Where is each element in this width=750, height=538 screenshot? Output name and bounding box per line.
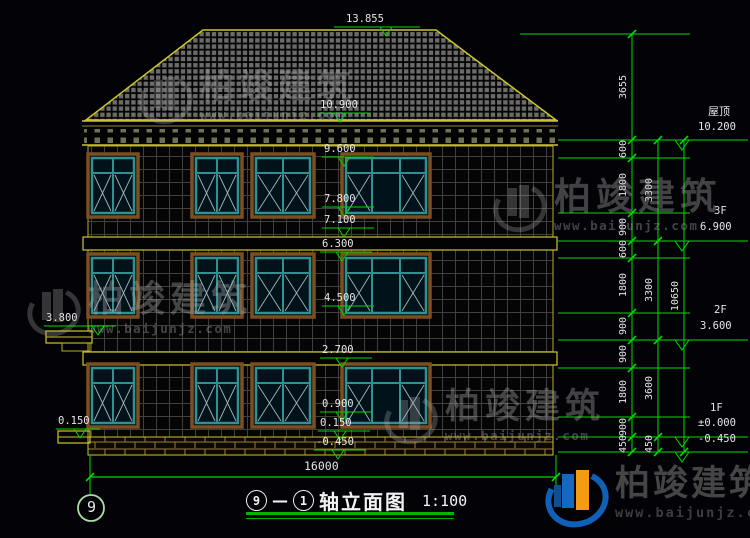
title-underline-thin bbox=[246, 518, 454, 519]
dim-label: 3655 bbox=[619, 59, 629, 115]
elevation-label: 0.150 bbox=[320, 418, 352, 429]
title-axis-end: 1 bbox=[293, 490, 314, 511]
floor-elevation-2f: 3.600 bbox=[700, 321, 732, 332]
windows-3f bbox=[88, 154, 430, 217]
elevation-label: 2.700 bbox=[322, 345, 354, 356]
floor-elevation-1f: ±0.000 bbox=[698, 418, 736, 429]
watermark: 柏竣建筑 www.baijunjz.com bbox=[383, 390, 605, 444]
floor-elevation-roof: 10.200 bbox=[698, 122, 736, 133]
brand-logo-icon bbox=[543, 462, 607, 526]
floor-label-roof: 屋顶 bbox=[708, 106, 730, 117]
title-axis-start: 9 bbox=[246, 490, 267, 511]
brand-logo: 柏竣建筑 www.baijunjz.com bbox=[543, 462, 750, 526]
elevation-linework bbox=[0, 0, 750, 538]
watermark-brand: 柏竣建筑 bbox=[445, 390, 605, 425]
elevation-label: 13.855 bbox=[346, 14, 384, 25]
watermark-site: www.baijunjz.com bbox=[445, 428, 605, 443]
elevation-label: 7.800 bbox=[324, 194, 356, 205]
brand-logo-icon bbox=[26, 282, 80, 336]
title-underline-thick bbox=[246, 512, 454, 515]
watermark-site: www.baijunjz.com bbox=[554, 218, 722, 233]
elevation-label: 0.900 bbox=[322, 399, 354, 410]
title-scale: 1:100 bbox=[422, 492, 467, 510]
watermark-site: www.baijunjz.com bbox=[200, 107, 356, 122]
brand-logo-icon bbox=[492, 178, 546, 232]
elevation-label: 6.300 bbox=[322, 239, 354, 250]
dim-label: 3300 bbox=[645, 262, 655, 318]
elevation-label: 9.600 bbox=[324, 144, 356, 155]
watermark-site: www.baijunjz.com bbox=[88, 321, 252, 336]
floor-elevation-ground: -0.450 bbox=[698, 434, 736, 445]
floor-band-3f bbox=[83, 237, 557, 250]
cad-elevation-drawing: 13.855 10.900 9.600 7.800 7.100 6.300 4.… bbox=[0, 0, 750, 538]
watermark-brand: 柏竣建筑 bbox=[554, 178, 722, 215]
title-text: 轴立面图 bbox=[319, 486, 407, 515]
brand-logo-icon bbox=[383, 390, 437, 444]
windows-1f bbox=[88, 364, 430, 427]
watermark: 柏竣建筑 www.baijunjz.com bbox=[26, 282, 252, 336]
dim-label: 3600 bbox=[645, 360, 655, 416]
eave-band bbox=[82, 121, 558, 145]
watermark-brand: 柏竣建筑 bbox=[200, 70, 356, 104]
brand-logo-icon bbox=[138, 70, 192, 124]
brand-name: 柏竣建筑 bbox=[615, 467, 750, 502]
side-step bbox=[58, 431, 90, 443]
watermark-brand: 柏竣建筑 bbox=[88, 282, 252, 318]
total-width-dim: 16000 bbox=[304, 461, 339, 473]
floor-label-2f: 2F bbox=[714, 305, 727, 316]
elevation-label: 4.500 bbox=[324, 293, 356, 304]
title-dash: — bbox=[272, 491, 288, 510]
watermark: 柏竣建筑 www.baijunjz.com bbox=[492, 178, 722, 233]
brand-website: www.baijunjz.com bbox=[615, 505, 750, 521]
elevation-label: -0.450 bbox=[316, 437, 354, 448]
dim-label: 10650 bbox=[671, 268, 681, 324]
floor-label-1f: 1F bbox=[710, 403, 723, 414]
watermark: 柏竣建筑 www.baijunjz.com bbox=[138, 70, 356, 124]
elevation-label: 0.150 bbox=[58, 416, 90, 427]
axis-bubble-number: 9 bbox=[84, 500, 99, 515]
drawing-title: 9 — 1 轴立面图 1:100 bbox=[246, 486, 467, 515]
elevation-label: 7.100 bbox=[324, 215, 356, 226]
